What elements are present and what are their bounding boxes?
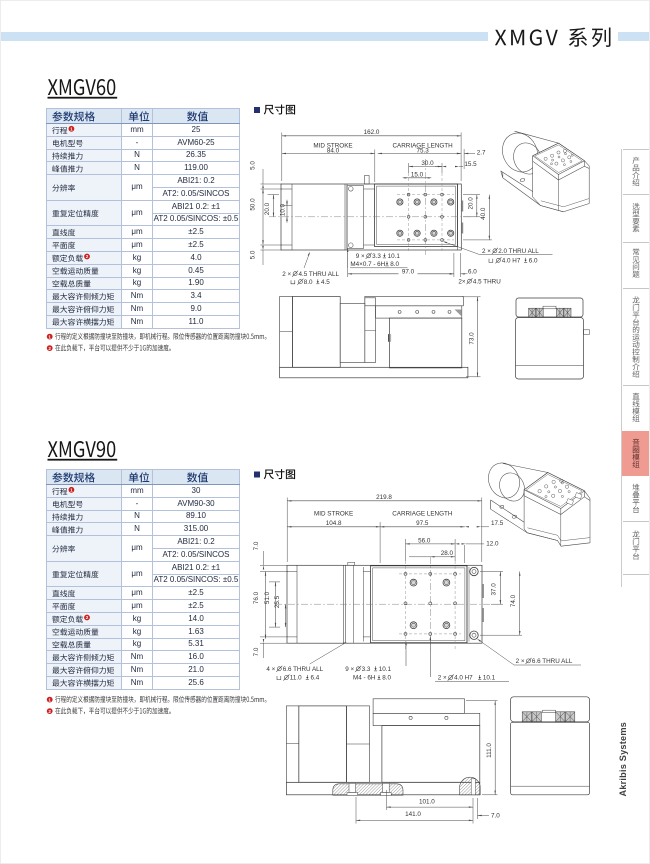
svg-text:28.0: 28.0	[441, 550, 454, 557]
svg-text:162.0: 162.0	[364, 129, 380, 136]
svg-text:20.0: 20.0	[264, 202, 271, 215]
svg-text:7.0: 7.0	[253, 647, 260, 656]
svg-text:17.5: 17.5	[491, 520, 504, 527]
svg-text:37.0: 37.0	[490, 583, 497, 596]
svg-text:MID STROKE: MID STROKE	[314, 511, 353, 518]
svg-text:4.5 THRU: 4.5 THRU	[473, 278, 501, 285]
svg-text:30.0: 30.0	[421, 160, 434, 167]
svg-text:6.0: 6.0	[468, 268, 477, 275]
svg-text:4.5 THRU ALL: 4.5 THRU ALL	[299, 271, 340, 278]
svg-text:10.0: 10.0	[280, 203, 287, 216]
svg-text:M4×0.7 - 6H: M4×0.7 - 6H	[350, 261, 385, 268]
svg-text:Akribis Systems: Akribis Systems	[618, 722, 628, 797]
svg-text:2: 2	[48, 709, 51, 714]
svg-text:104.8: 104.8	[326, 520, 342, 527]
svg-text:7.0: 7.0	[491, 813, 500, 820]
svg-text:101.0: 101.0	[419, 799, 435, 806]
svg-text:2 ×: 2 ×	[482, 248, 491, 255]
svg-text:1: 1	[48, 697, 51, 702]
svg-text:4.5: 4.5	[321, 279, 330, 286]
svg-text:1: 1	[70, 488, 73, 493]
svg-text:10.1: 10.1	[388, 253, 401, 260]
svg-text:141.0: 141.0	[405, 811, 421, 818]
svg-text:M4 - 6H: M4 - 6H	[353, 675, 376, 682]
svg-text:10.1: 10.1	[483, 675, 496, 682]
svg-text:7.0: 7.0	[253, 541, 260, 550]
svg-text:5.0: 5.0	[250, 250, 257, 259]
svg-text:2: 2	[48, 346, 51, 351]
svg-text:219.8: 219.8	[376, 494, 392, 501]
svg-text:2.0 THRU ALL: 2.0 THRU ALL	[498, 248, 539, 255]
svg-text:8.0: 8.0	[390, 261, 399, 268]
svg-text:9 ×: 9 ×	[356, 253, 365, 260]
svg-text:97.0: 97.0	[402, 268, 415, 275]
svg-text:20.0: 20.0	[467, 197, 474, 210]
svg-text:97.5: 97.5	[416, 520, 429, 527]
svg-text:111.0: 111.0	[486, 743, 493, 758]
svg-text:2×: 2×	[458, 278, 466, 285]
svg-text:6.0: 6.0	[529, 257, 538, 264]
svg-text:25.5: 25.5	[274, 595, 281, 608]
svg-text:2 ×: 2 ×	[516, 658, 525, 665]
svg-text:51.0: 51.0	[264, 591, 271, 604]
svg-text:4 ×: 4 ×	[266, 666, 275, 673]
svg-text:11.0: 11.0	[290, 675, 302, 682]
svg-text:76.0: 76.0	[253, 591, 260, 604]
svg-text:2: 2	[86, 615, 89, 620]
svg-text:50.0: 50.0	[249, 198, 256, 211]
svg-text:2: 2	[86, 254, 89, 259]
svg-text:56.0: 56.0	[418, 537, 431, 544]
svg-text:6.6 THRU ALL: 6.6 THRU ALL	[532, 658, 573, 665]
svg-text:40.0: 40.0	[480, 207, 487, 220]
svg-text:73.0: 73.0	[468, 332, 475, 345]
svg-text:15.5: 15.5	[464, 161, 477, 168]
svg-text:1: 1	[70, 127, 73, 132]
svg-text:2 ×: 2 ×	[438, 675, 447, 682]
svg-text:CARRIAGE LENGTH: CARRIAGE LENGTH	[392, 511, 453, 518]
svg-text:3.3: 3.3	[372, 253, 381, 260]
svg-text:15.0: 15.0	[411, 172, 424, 179]
svg-text:4.0 H7: 4.0 H7	[502, 257, 521, 264]
svg-text:6.4: 6.4	[311, 675, 320, 682]
svg-text:8.0: 8.0	[304, 279, 313, 286]
svg-text:2.7: 2.7	[477, 149, 486, 156]
svg-text:75.3: 75.3	[416, 148, 429, 155]
svg-text:12.0: 12.0	[486, 540, 499, 547]
svg-text:10.1: 10.1	[379, 666, 392, 673]
svg-text:8.0: 8.0	[382, 675, 391, 682]
svg-text:9 ×: 9 ×	[345, 666, 354, 673]
svg-text:74.0: 74.0	[510, 594, 517, 607]
svg-text:4.0 H7: 4.0 H7	[454, 675, 473, 682]
svg-text:6.6 THRU ALL: 6.6 THRU ALL	[283, 666, 324, 673]
svg-text:1: 1	[48, 334, 51, 339]
svg-text:3.3: 3.3	[362, 666, 371, 673]
svg-text:84.0: 84.0	[327, 148, 340, 155]
svg-text:2 ×: 2 ×	[282, 271, 291, 278]
svg-text:5.0: 5.0	[250, 161, 257, 170]
